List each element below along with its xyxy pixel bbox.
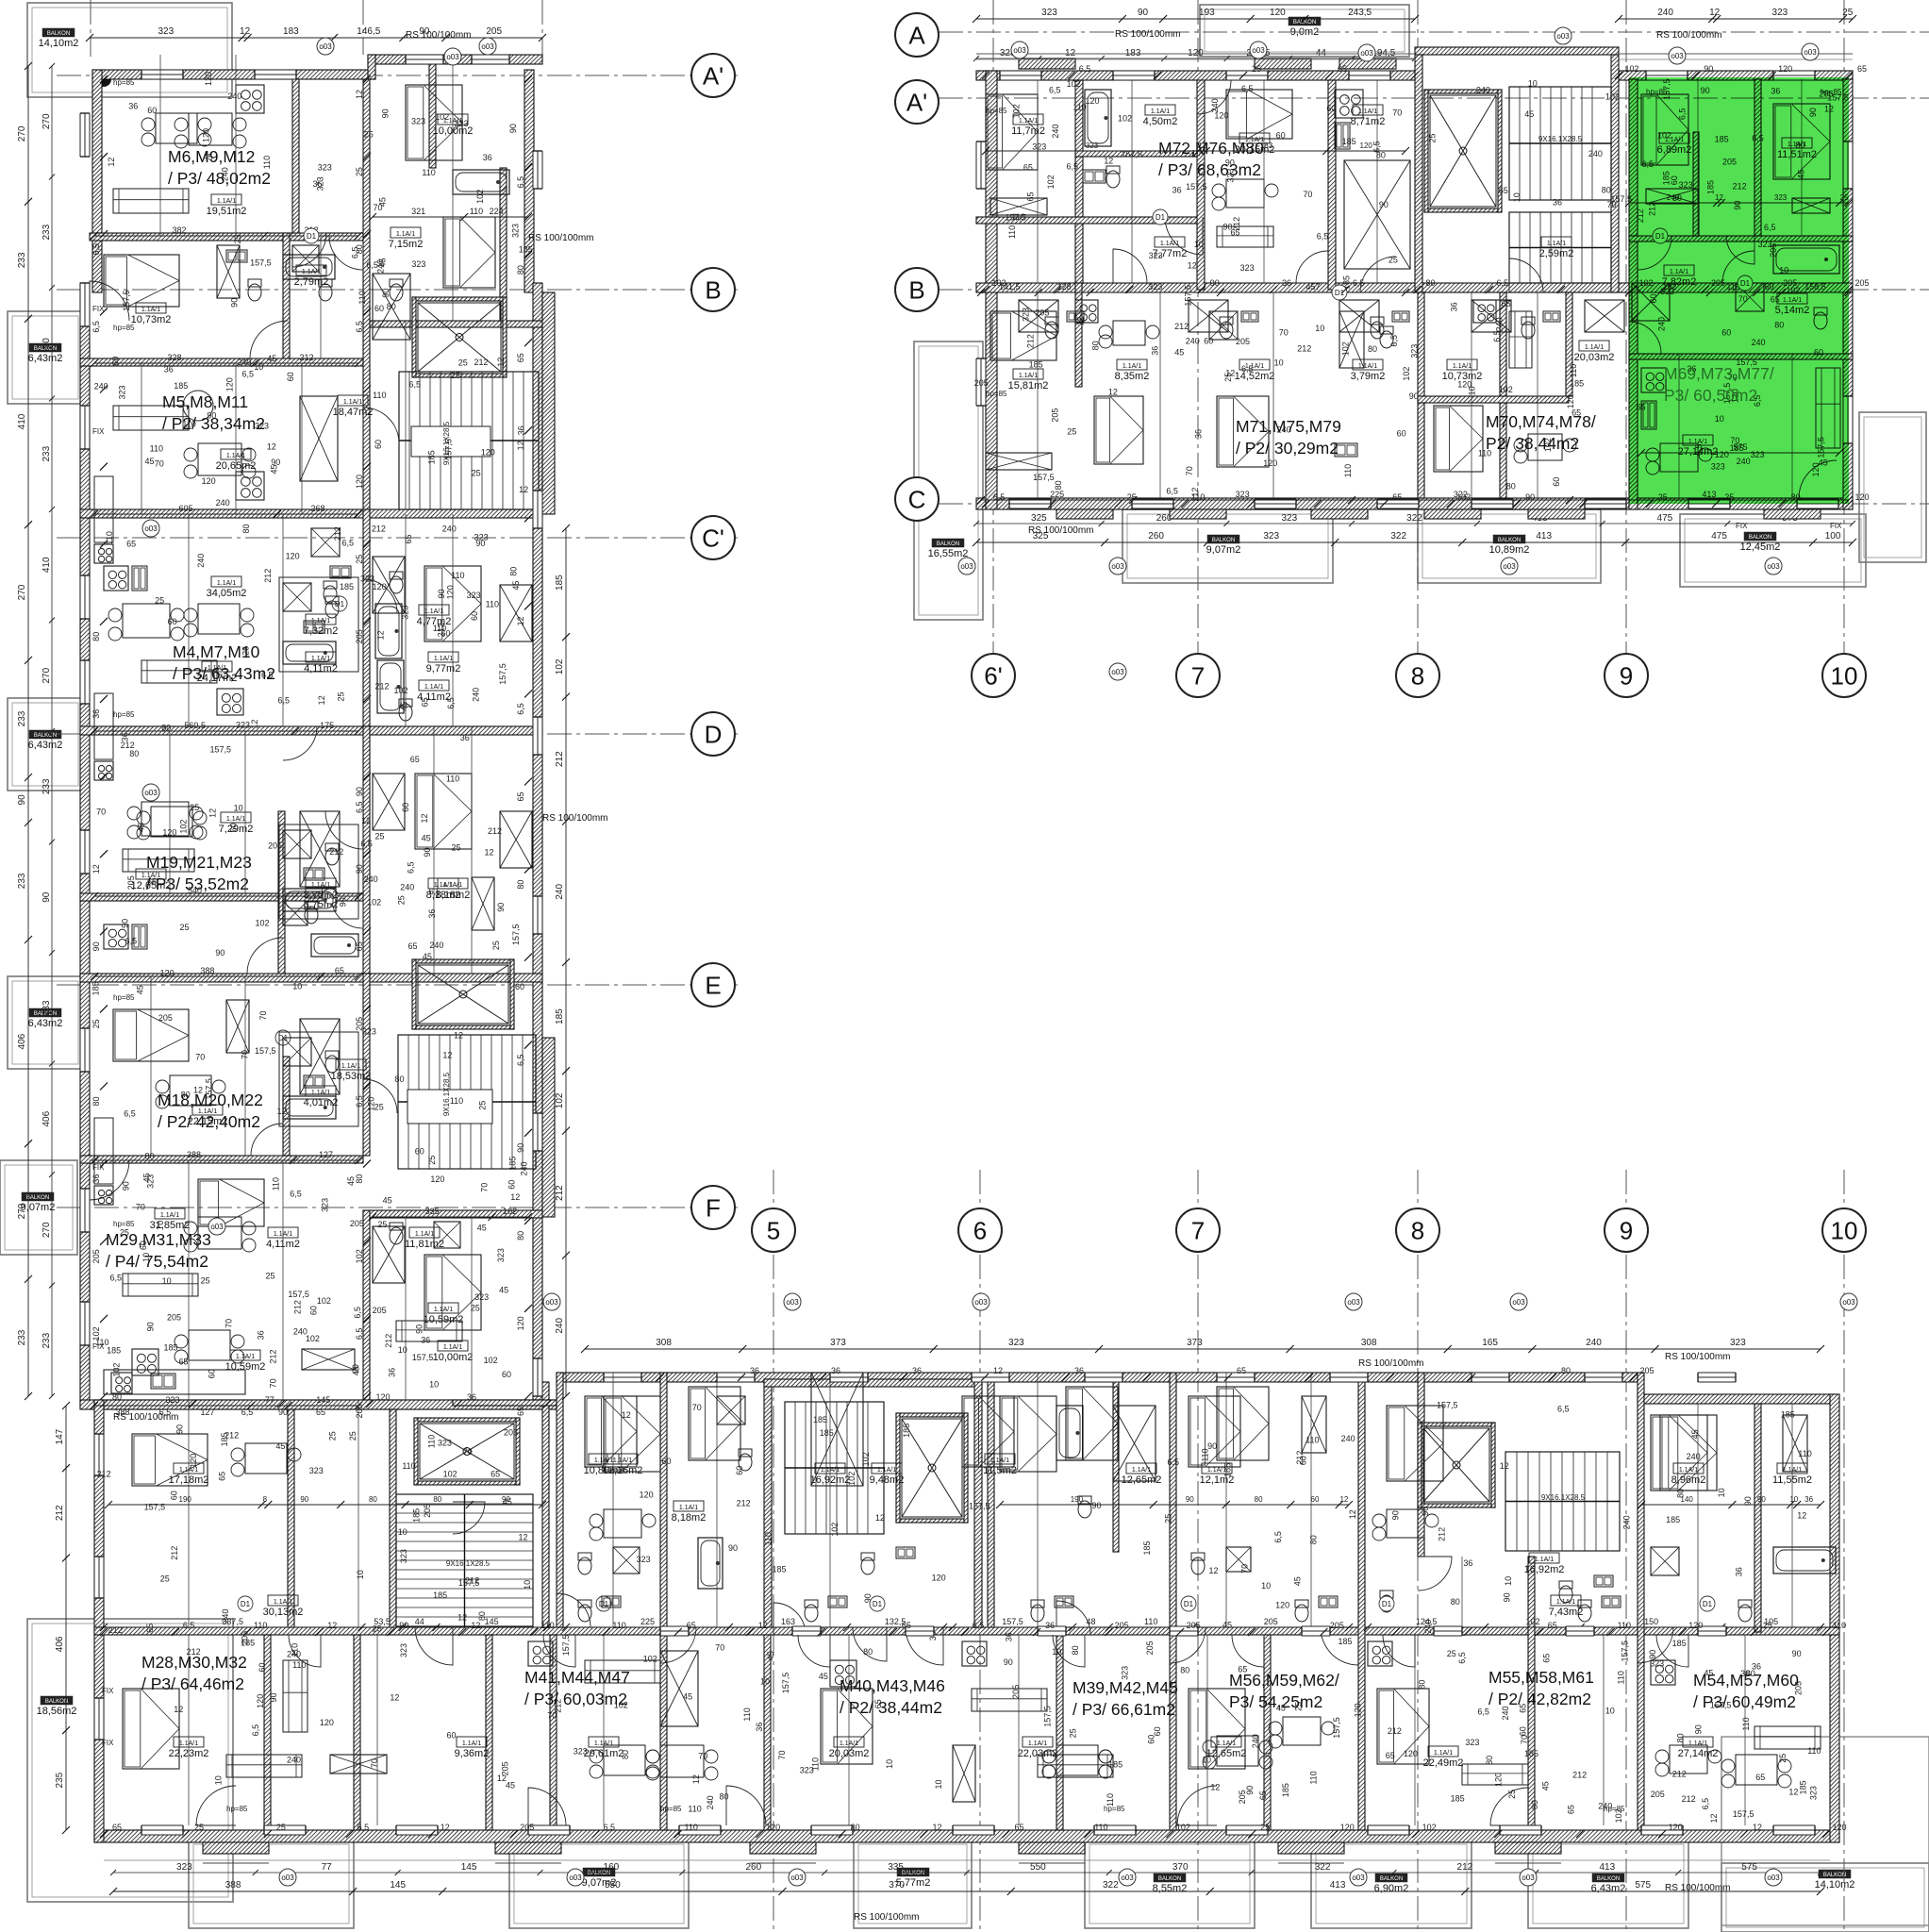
svg-text:D1: D1: [1156, 213, 1166, 222]
svg-text:233: 233: [42, 778, 52, 794]
svg-text:12: 12: [932, 1823, 941, 1832]
svg-text:110: 110: [427, 1435, 437, 1448]
svg-text:10: 10: [162, 1276, 172, 1286]
svg-text:140: 140: [1681, 1495, 1694, 1504]
svg-text:323: 323: [1236, 490, 1250, 499]
svg-text:120: 120: [1354, 1703, 1363, 1717]
svg-text:90: 90: [475, 539, 485, 548]
svg-text:335: 335: [888, 1862, 904, 1873]
svg-text:36: 36: [912, 1366, 922, 1375]
svg-text:205: 205: [1794, 1681, 1804, 1695]
svg-text:102: 102: [830, 1523, 840, 1537]
svg-text:270: 270: [42, 1222, 52, 1238]
svg-text:60: 60: [502, 1370, 511, 1379]
svg-text:1.1A/1: 1.1A/1: [1688, 1740, 1707, 1747]
svg-text:212: 212: [55, 1505, 65, 1521]
svg-text:B: B: [705, 275, 721, 304]
svg-text:25: 25: [1842, 8, 1854, 18]
svg-text:185: 185: [1570, 378, 1584, 388]
svg-text:65: 65: [1566, 1805, 1575, 1814]
svg-text:185: 185: [433, 1591, 447, 1600]
svg-text:157,5: 157,5: [250, 258, 272, 268]
svg-text:25: 25: [1428, 133, 1438, 142]
svg-text:45: 45: [423, 952, 432, 961]
svg-text:25: 25: [276, 1823, 286, 1832]
svg-text:328: 328: [167, 353, 181, 362]
svg-text:1.1A/1: 1.1A/1: [1556, 1599, 1575, 1606]
svg-text:6,5: 6,5: [1166, 487, 1178, 496]
svg-text:25: 25: [491, 941, 501, 950]
svg-text:157,5: 157,5: [1621, 1641, 1630, 1662]
svg-text:145: 145: [390, 1880, 406, 1890]
svg-text:12: 12: [518, 1533, 527, 1542]
svg-text:14,52m2: 14,52m2: [1235, 371, 1275, 382]
svg-text:BALKON: BALKON: [26, 1195, 49, 1201]
svg-text:80: 80: [1368, 344, 1377, 354]
svg-text:36: 36: [91, 1174, 101, 1184]
svg-text:45: 45: [136, 985, 145, 994]
svg-text:90: 90: [1138, 8, 1149, 18]
svg-text:60: 60: [415, 1146, 424, 1156]
svg-text:8,18m2: 8,18m2: [672, 1512, 707, 1524]
svg-text:25: 25: [355, 167, 364, 176]
svg-text:10: 10: [356, 1570, 365, 1579]
svg-text:10: 10: [254, 362, 263, 372]
svg-text:25: 25: [1164, 1514, 1173, 1524]
svg-text:6,5: 6,5: [429, 887, 441, 896]
svg-text:hp=85: hp=85: [660, 1805, 682, 1813]
svg-text:110: 110: [685, 1823, 698, 1832]
svg-text:205: 205: [126, 875, 136, 890]
svg-text:6,5: 6,5: [1066, 162, 1078, 172]
svg-text:80: 80: [1091, 341, 1101, 350]
svg-text:120: 120: [1778, 64, 1792, 74]
svg-text:60: 60: [507, 1180, 516, 1190]
svg-text:260: 260: [1148, 531, 1164, 541]
svg-text:413: 413: [1330, 1880, 1346, 1890]
svg-text:225: 225: [1050, 490, 1064, 499]
svg-text:9,36m2: 9,36m2: [455, 1748, 490, 1759]
svg-text:102: 102: [861, 1452, 871, 1466]
svg-text:80: 80: [1602, 186, 1611, 195]
svg-text:36: 36: [312, 179, 322, 189]
svg-text:12: 12: [1225, 369, 1235, 378]
svg-text:145: 145: [461, 1862, 477, 1873]
svg-text:1.1A/1: 1.1A/1: [1019, 373, 1038, 379]
svg-text:36: 36: [1735, 1567, 1744, 1576]
svg-text:102: 102: [1067, 79, 1081, 89]
svg-text:25: 25: [190, 803, 199, 812]
svg-text:60: 60: [208, 1369, 217, 1378]
svg-text:80: 80: [129, 749, 139, 758]
svg-text:233: 233: [17, 252, 27, 268]
svg-text:240: 240: [227, 92, 241, 101]
svg-text:337,5: 337,5: [222, 1617, 243, 1626]
svg-text:1.1A/1: 1.1A/1: [679, 1505, 698, 1511]
svg-text:102: 102: [1176, 1823, 1190, 1832]
svg-text:323: 323: [1008, 1338, 1024, 1348]
svg-text:65: 65: [407, 941, 417, 951]
svg-text:185: 185: [1142, 1541, 1152, 1555]
svg-text:212: 212: [474, 358, 488, 367]
svg-text:60: 60: [735, 1466, 744, 1475]
svg-text:65: 65: [1338, 64, 1347, 74]
svg-text:6,5: 6,5: [408, 379, 421, 389]
svg-text:/ P2/ 42,40m2: / P2/ 42,40m2: [158, 1112, 260, 1131]
svg-text:185: 185: [508, 1157, 518, 1171]
svg-text:90: 90: [1210, 278, 1220, 288]
svg-text:9,77m2: 9,77m2: [426, 663, 461, 675]
svg-text:o03: o03: [319, 42, 332, 51]
svg-text:36: 36: [91, 709, 101, 719]
svg-text:36: 36: [257, 1330, 266, 1340]
svg-text:45: 45: [506, 1781, 515, 1790]
svg-text:102: 102: [1525, 1617, 1539, 1626]
svg-text:80: 80: [394, 1074, 404, 1084]
svg-text:90: 90: [381, 108, 391, 118]
svg-text:90: 90: [17, 794, 27, 806]
svg-text:157,5: 157,5: [144, 1503, 166, 1512]
svg-text:6,43m2: 6,43m2: [28, 740, 63, 751]
svg-text:6,43m2: 6,43m2: [28, 353, 63, 364]
svg-text:10: 10: [1528, 78, 1538, 88]
svg-text:45: 45: [270, 464, 279, 474]
svg-text:M40,M43,M46: M40,M43,M46: [840, 1676, 945, 1695]
svg-text:240: 240: [429, 941, 443, 950]
svg-text:o03: o03: [545, 1298, 558, 1307]
svg-text:12: 12: [208, 808, 217, 818]
svg-text:205: 205: [1145, 1641, 1155, 1655]
svg-text:110: 110: [373, 391, 386, 400]
svg-text:6,90m2: 6,90m2: [1374, 1883, 1409, 1894]
svg-text:10: 10: [1194, 240, 1204, 249]
svg-text:RS 100/100mm: RS 100/100mm: [1358, 1358, 1423, 1369]
svg-text:240: 240: [472, 688, 481, 702]
svg-text:M41,M44,M47: M41,M44,M47: [524, 1668, 630, 1687]
svg-text:10: 10: [1789, 1495, 1798, 1504]
svg-text:16,55m2: 16,55m2: [928, 548, 969, 559]
svg-text:45: 45: [346, 1176, 356, 1186]
svg-text:o03: o03: [1352, 1874, 1365, 1882]
svg-text:o03: o03: [1111, 562, 1124, 571]
svg-text:240: 240: [1251, 1734, 1260, 1748]
svg-text:7,43m2: 7,43m2: [1549, 1607, 1584, 1618]
svg-text:80: 80: [387, 302, 396, 311]
svg-text:45: 45: [267, 354, 276, 363]
svg-text:o03: o03: [1347, 1298, 1360, 1307]
svg-text:323: 323: [176, 1862, 192, 1873]
svg-text:70: 70: [1279, 328, 1289, 338]
svg-text:205: 205: [1854, 278, 1869, 288]
svg-text:D1: D1: [241, 1600, 251, 1608]
svg-text:323: 323: [1410, 344, 1420, 358]
svg-text:65: 65: [516, 791, 525, 801]
svg-text:80: 80: [161, 724, 171, 733]
svg-text:120: 120: [189, 1454, 198, 1468]
svg-text:12: 12: [1709, 8, 1721, 18]
svg-text:80: 80: [1675, 1733, 1685, 1742]
svg-text:80: 80: [508, 567, 518, 576]
svg-text:D1: D1: [1703, 1600, 1713, 1608]
svg-text:225: 225: [640, 1617, 655, 1626]
svg-text:14,10m2: 14,10m2: [39, 38, 79, 49]
svg-text:157,5: 157,5: [1733, 1809, 1754, 1819]
svg-text:65: 65: [516, 1407, 525, 1416]
svg-text:18,53m2: 18,53m2: [331, 1071, 372, 1082]
svg-text:6,5: 6,5: [973, 1621, 985, 1630]
svg-text:9X16.1X28.5: 9X16.1X28.5: [442, 1072, 451, 1116]
svg-text:205: 205: [167, 1313, 181, 1323]
svg-text:3,75m2: 3,75m2: [304, 890, 339, 901]
svg-text:25: 25: [1447, 1649, 1456, 1658]
svg-text:540: 540: [188, 886, 202, 895]
svg-text:10: 10: [213, 1775, 223, 1785]
svg-text:FIX: FIX: [92, 427, 105, 436]
svg-text:90: 90: [415, 1324, 424, 1334]
svg-text:323: 323: [1263, 531, 1279, 541]
svg-text:157,5: 157,5: [210, 745, 232, 755]
svg-text:165: 165: [1482, 1338, 1498, 1348]
svg-text:102: 102: [555, 1092, 565, 1108]
svg-text:A': A': [703, 61, 723, 90]
svg-text:323: 323: [510, 224, 520, 238]
svg-text:90: 90: [146, 1322, 156, 1331]
svg-text:147: 147: [55, 1428, 65, 1444]
svg-text:25: 25: [1260, 1823, 1270, 1832]
svg-text:240: 240: [1476, 86, 1490, 95]
svg-text:102: 102: [484, 1356, 498, 1365]
svg-text:6,5: 6,5: [1497, 278, 1509, 288]
svg-text:45: 45: [1276, 1704, 1286, 1713]
svg-text:110: 110: [150, 443, 163, 453]
svg-text:36: 36: [164, 365, 174, 375]
svg-text:120: 120: [1566, 394, 1575, 408]
svg-text:102: 102: [355, 1249, 364, 1263]
svg-text:65: 65: [1519, 1704, 1528, 1713]
svg-text:36: 36: [1740, 1669, 1750, 1678]
svg-text:70: 70: [715, 1642, 724, 1652]
svg-text:110: 110: [1741, 1717, 1751, 1730]
svg-text:45: 45: [1293, 1576, 1303, 1586]
svg-text:o03: o03: [974, 1298, 988, 1307]
svg-text:322: 322: [1406, 513, 1422, 524]
svg-text:110: 110: [358, 291, 367, 304]
svg-text:25: 25: [471, 1304, 480, 1313]
svg-text:65: 65: [410, 755, 420, 764]
svg-text:30,13m2: 30,13m2: [263, 1607, 304, 1618]
svg-text:10: 10: [1831, 661, 1858, 690]
svg-text:212: 212: [1388, 1726, 1402, 1736]
svg-text:7: 7: [1191, 661, 1205, 690]
svg-text:6,5: 6,5: [355, 1328, 364, 1341]
svg-text:157,5: 157,5: [969, 1502, 990, 1511]
svg-text:25: 25: [194, 1823, 204, 1832]
svg-text:10: 10: [292, 982, 302, 991]
svg-text:6,5: 6,5: [1273, 1531, 1283, 1543]
svg-text:185: 185: [1524, 1749, 1538, 1758]
svg-text:M71,M75,M79: M71,M75,M79: [1236, 417, 1341, 436]
svg-text:65: 65: [1386, 1751, 1395, 1760]
svg-text:1.1A/1: 1.1A/1: [1679, 1467, 1698, 1474]
svg-text:27,14m2: 27,14m2: [1678, 1748, 1719, 1759]
svg-text:102: 102: [91, 1326, 101, 1341]
svg-text:120: 120: [1340, 1823, 1355, 1832]
svg-text:1.1A/1: 1.1A/1: [443, 1344, 462, 1351]
svg-text:BALKON: BALKON: [1380, 1876, 1403, 1882]
svg-text:212: 212: [372, 525, 386, 534]
svg-text:/ P2/ 38,34m2: / P2/ 38,34m2: [162, 414, 265, 433]
svg-text:323: 323: [399, 1549, 408, 1563]
svg-text:36: 36: [1194, 429, 1204, 439]
svg-text:90: 90: [1004, 1657, 1013, 1667]
svg-text:45: 45: [351, 1366, 360, 1375]
svg-text:25: 25: [427, 1156, 437, 1165]
svg-text:60: 60: [470, 611, 479, 621]
svg-text:110: 110: [612, 1621, 625, 1630]
svg-text:240: 240: [442, 525, 457, 534]
svg-text:90: 90: [1186, 1495, 1194, 1504]
svg-text:110: 110: [1343, 464, 1353, 477]
svg-text:224: 224: [490, 207, 504, 216]
svg-text:157,5: 157,5: [1002, 1617, 1023, 1626]
svg-text:12: 12: [484, 847, 493, 857]
svg-text:205: 205: [520, 1823, 534, 1832]
svg-text:90: 90: [728, 1543, 738, 1553]
svg-text:388: 388: [200, 966, 214, 975]
svg-text:12,45m2: 12,45m2: [1740, 541, 1781, 553]
svg-text:o03: o03: [1804, 48, 1817, 57]
svg-text:60: 60: [374, 440, 383, 449]
svg-text:212: 212: [374, 681, 389, 691]
svg-text:60: 60: [286, 372, 295, 381]
svg-text:12: 12: [471, 1621, 480, 1630]
svg-text:BALKON: BALKON: [1749, 535, 1771, 541]
svg-text:6,5: 6,5: [993, 492, 1006, 502]
svg-text:36: 36: [1150, 346, 1159, 356]
svg-text:205: 205: [1187, 1621, 1201, 1630]
svg-text:4,01m2: 4,01m2: [304, 1097, 339, 1108]
svg-text:110: 110: [422, 168, 435, 177]
svg-text:45: 45: [383, 1196, 392, 1206]
svg-text:185: 185: [1223, 1463, 1233, 1477]
svg-text:1.1A/1: 1.1A/1: [877, 1467, 896, 1474]
svg-text:110: 110: [1308, 1771, 1318, 1784]
svg-text:36: 36: [1449, 302, 1458, 311]
svg-text:12: 12: [1500, 1461, 1509, 1471]
svg-text:323: 323: [1086, 142, 1099, 150]
svg-text:240: 240: [196, 554, 206, 568]
svg-text:6,5: 6,5: [1389, 335, 1399, 347]
svg-text:hp=85: hp=85: [986, 390, 1007, 398]
svg-text:6,5: 6,5: [290, 1190, 302, 1199]
svg-text:8,55m2: 8,55m2: [1153, 1883, 1188, 1894]
svg-text:36: 36: [427, 909, 437, 919]
svg-text:205: 205: [1115, 1621, 1129, 1630]
svg-text:/ P3/ 60,49m2: / P3/ 60,49m2: [1693, 1692, 1796, 1711]
svg-text:65: 65: [1542, 1654, 1552, 1663]
svg-text:12: 12: [376, 630, 386, 640]
svg-text:10: 10: [398, 1345, 407, 1355]
svg-text:102: 102: [255, 919, 269, 928]
svg-text:1.1A/1: 1.1A/1: [311, 656, 330, 662]
svg-text:373: 373: [830, 1338, 846, 1348]
svg-text:36: 36: [387, 1368, 396, 1377]
svg-text:FIX: FIX: [102, 1739, 114, 1747]
svg-text:o03: o03: [960, 562, 973, 571]
svg-text:323: 323: [158, 26, 174, 37]
svg-text:102: 102: [435, 112, 449, 122]
svg-text:45: 45: [1174, 348, 1184, 358]
svg-text:12: 12: [1339, 1495, 1348, 1504]
svg-text:60: 60: [515, 982, 524, 991]
svg-text:12: 12: [1198, 142, 1206, 150]
svg-text:323: 323: [411, 116, 425, 125]
svg-text:12: 12: [1188, 261, 1197, 271]
svg-text:110: 110: [1305, 1435, 1319, 1444]
svg-text:575: 575: [1741, 1862, 1757, 1873]
svg-text:323: 323: [496, 1248, 506, 1262]
svg-text:322: 322: [1390, 531, 1406, 541]
svg-text:240: 240: [1341, 1434, 1355, 1443]
svg-text:185: 185: [412, 1508, 422, 1523]
svg-text:120: 120: [481, 447, 495, 457]
svg-text:12: 12: [1788, 1788, 1798, 1797]
svg-text:60: 60: [401, 803, 410, 812]
svg-text:205: 205: [373, 1306, 387, 1315]
svg-text:185: 185: [813, 1415, 827, 1424]
svg-text:233: 233: [42, 1332, 52, 1348]
svg-text:25: 25: [374, 1102, 384, 1111]
svg-text:45: 45: [1524, 109, 1534, 119]
svg-text:RS 100/100mm: RS 100/100mm: [1028, 525, 1093, 536]
svg-text:102: 102: [555, 658, 565, 675]
svg-text:120: 120: [1360, 142, 1373, 150]
svg-text:D1: D1: [873, 1600, 883, 1608]
svg-text:12: 12: [758, 1621, 768, 1630]
svg-text:BALKON: BALKON: [1293, 20, 1316, 25]
svg-text:70: 70: [1185, 466, 1194, 475]
svg-text:/ P3/ 68,63m2: / P3/ 68,63m2: [1158, 160, 1261, 179]
svg-text:185: 185: [1108, 1759, 1122, 1769]
svg-text:12: 12: [277, 1107, 287, 1116]
svg-text:80: 80: [1530, 1800, 1539, 1809]
svg-text:120: 120: [373, 582, 387, 591]
svg-text:10,00m2: 10,00m2: [433, 1352, 474, 1363]
svg-text:60: 60: [1326, 104, 1336, 113]
svg-text:120: 120: [320, 1718, 334, 1727]
svg-text:102: 102: [1456, 492, 1471, 502]
svg-text:240: 240: [216, 498, 230, 508]
svg-text:1.1A/1: 1.1A/1: [141, 307, 160, 313]
svg-text:80: 80: [477, 1611, 487, 1621]
svg-text:323: 323: [1041, 8, 1057, 18]
svg-text:120: 120: [225, 377, 235, 391]
svg-text:212: 212: [465, 1575, 479, 1585]
svg-text:1.1A/1: 1.1A/1: [424, 684, 443, 691]
svg-text:323: 323: [118, 385, 127, 399]
svg-text:80: 80: [1425, 278, 1435, 288]
svg-text:185: 185: [163, 1343, 177, 1353]
svg-text:hp=85: hp=85: [226, 1805, 248, 1813]
svg-text:hp=85: hp=85: [113, 78, 135, 87]
svg-text:323: 323: [1240, 263, 1255, 273]
svg-text:10: 10: [1512, 192, 1522, 202]
svg-text:120: 120: [1854, 492, 1869, 502]
svg-text:65: 65: [178, 1357, 188, 1367]
svg-text:1.1A/1: 1.1A/1: [302, 269, 321, 275]
svg-text:12: 12: [1753, 1823, 1762, 1832]
svg-text:65: 65: [1025, 192, 1035, 201]
